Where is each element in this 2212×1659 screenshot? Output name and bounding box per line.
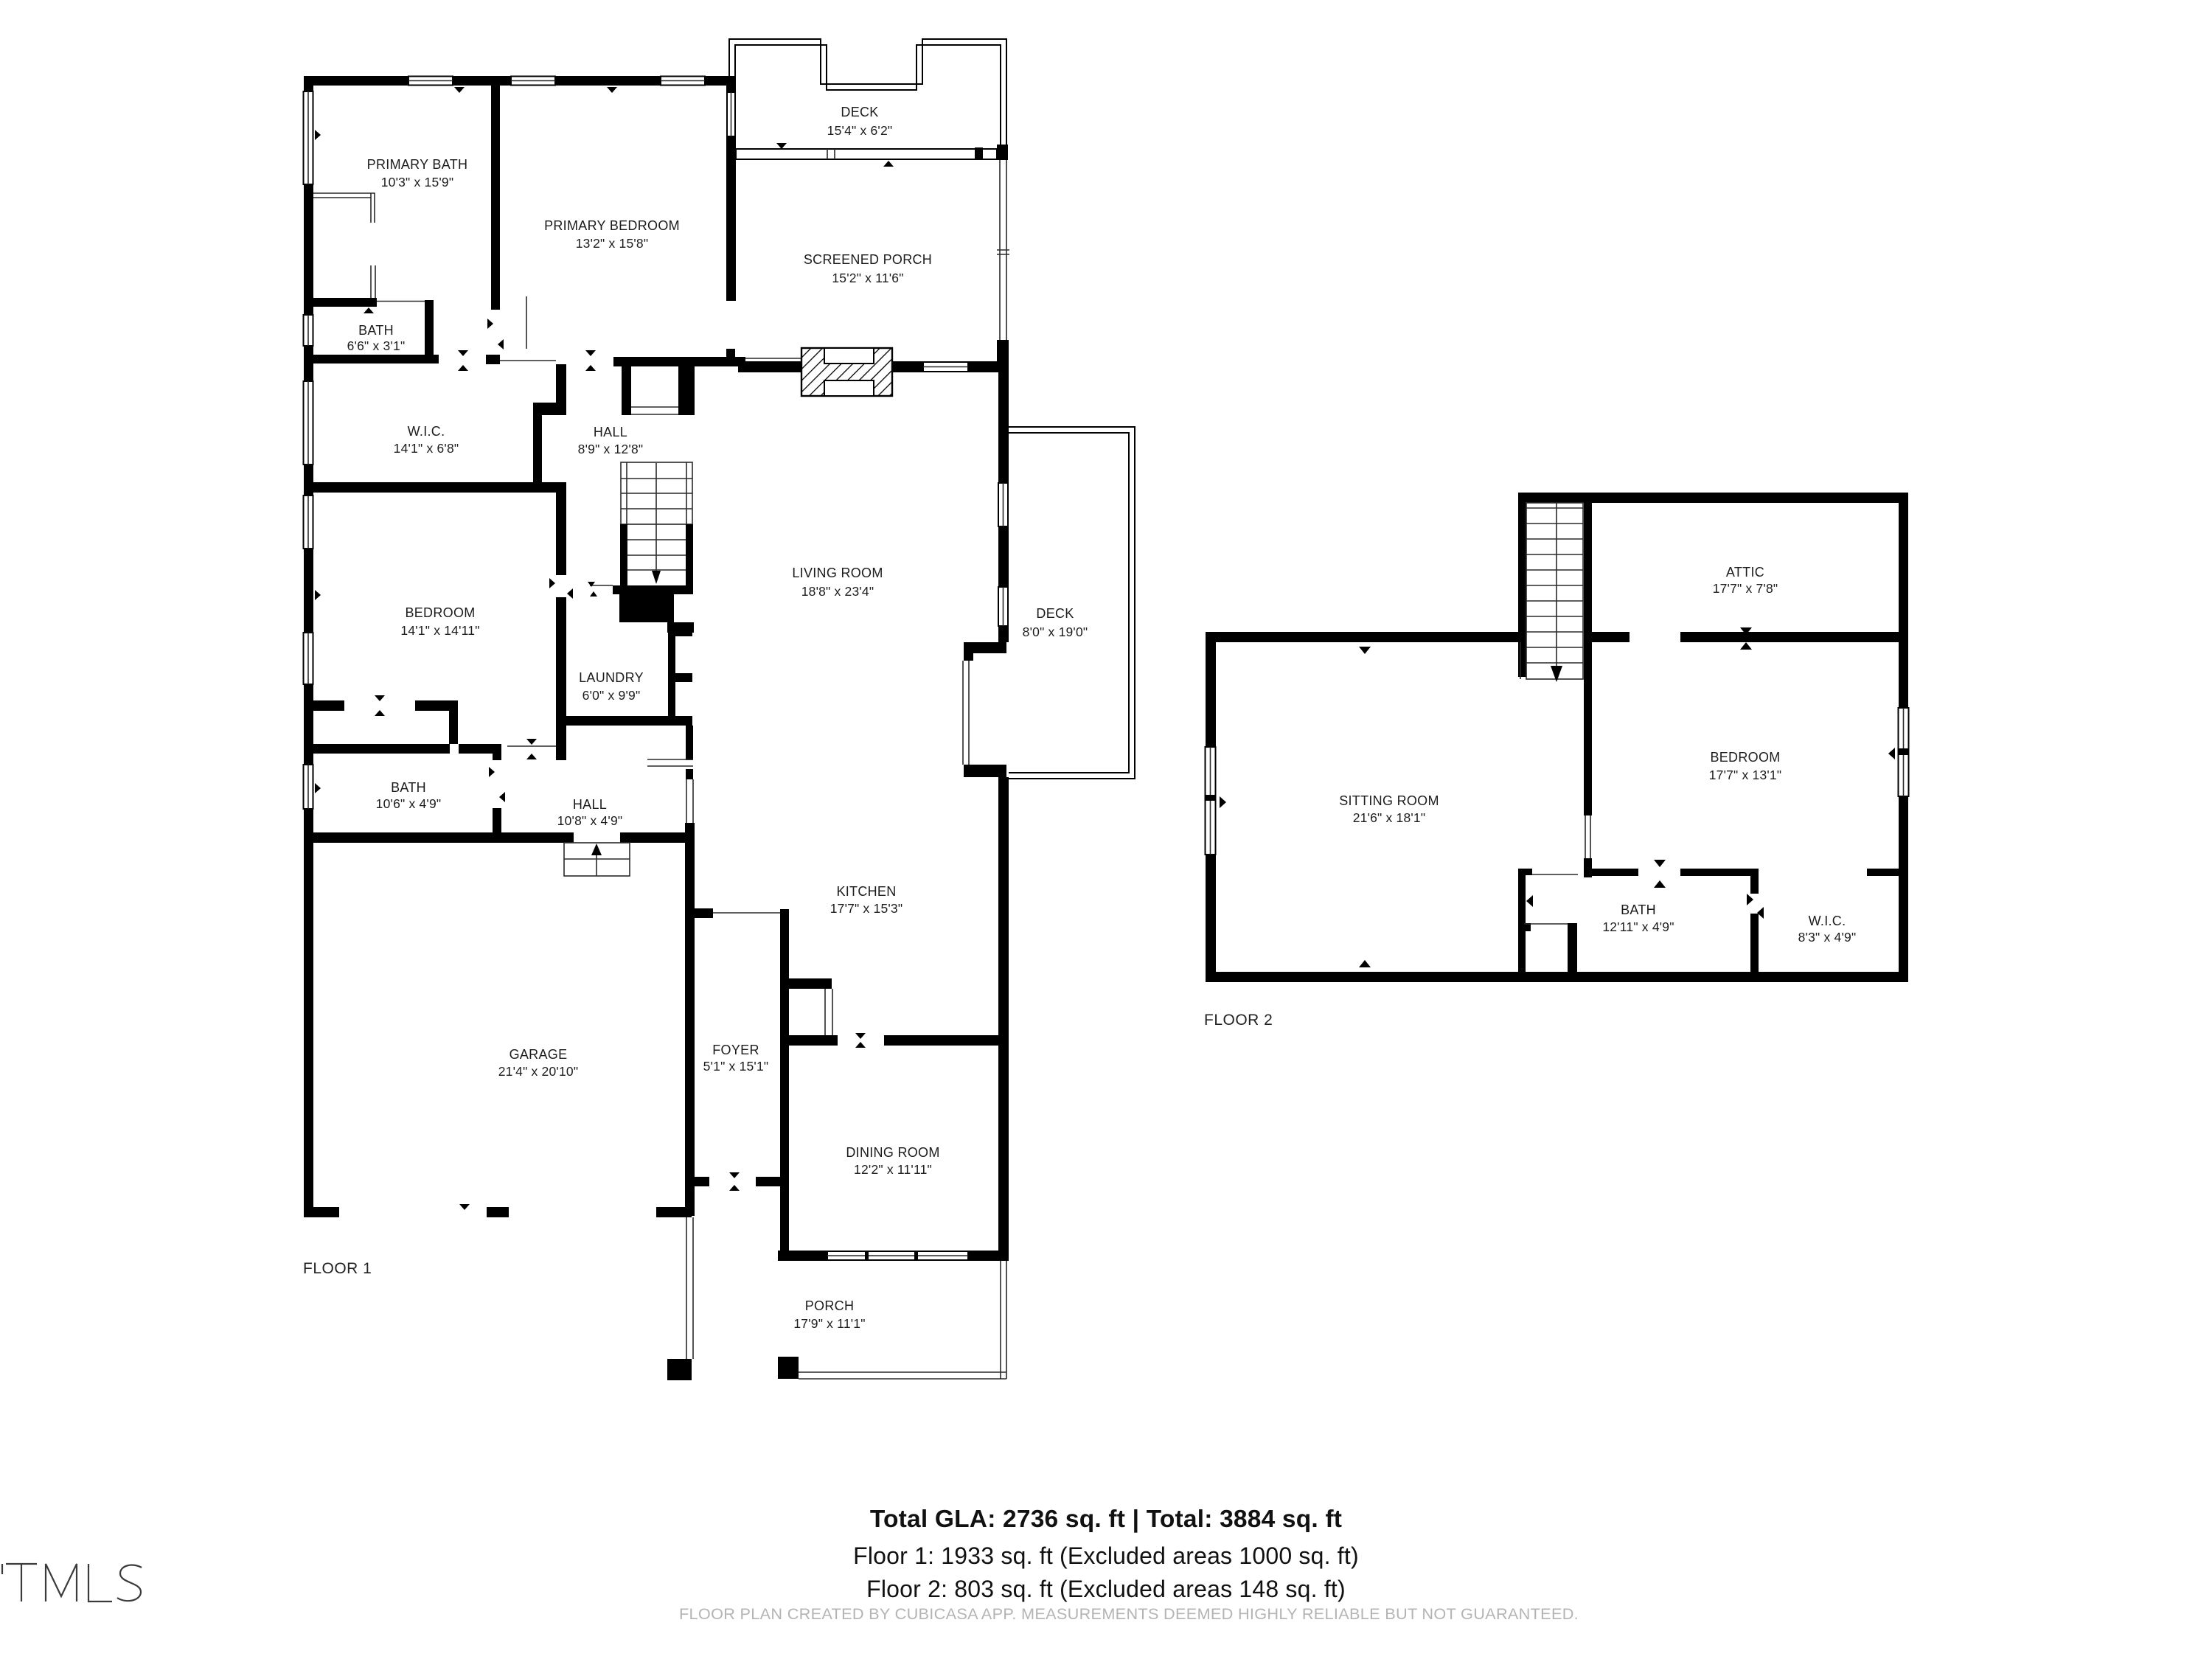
- svg-text:14'1" x 6'8": 14'1" x 6'8": [394, 441, 459, 456]
- svg-text:BATH: BATH: [358, 323, 394, 338]
- svg-text:10'3" x 15'9": 10'3" x 15'9": [381, 175, 454, 189]
- svg-text:Total GLA: 2736 sq. ft | Total: Total GLA: 2736 sq. ft | Total: 3884 sq.…: [870, 1506, 1342, 1533]
- svg-text:FLOOR 2: FLOOR 2: [1204, 1012, 1273, 1029]
- svg-text:Floor 1: 1933 sq. ft (Excluded: Floor 1: 1933 sq. ft (Excluded areas 100…: [853, 1543, 1359, 1569]
- svg-text:Floor 2: 803 sq. ft (Excluded: Floor 2: 803 sq. ft (Excluded areas 148 …: [866, 1576, 1346, 1602]
- svg-text:BEDROOM: BEDROOM: [405, 605, 475, 620]
- svg-text:12'2" x 11'11": 12'2" x 11'11": [854, 1162, 932, 1177]
- svg-text:PORCH: PORCH: [805, 1298, 855, 1313]
- svg-text:8'9" x 12'8": 8'9" x 12'8": [578, 442, 644, 456]
- svg-text:BEDROOM: BEDROOM: [1710, 750, 1780, 765]
- svg-text:FOYER: FOYER: [712, 1043, 759, 1057]
- svg-text:21'4" x 20'10": 21'4" x 20'10": [498, 1064, 579, 1079]
- svg-text:DECK: DECK: [841, 105, 878, 119]
- svg-text:12'11" x 4'9": 12'11" x 4'9": [1602, 919, 1674, 934]
- svg-text:10'6" x 4'9": 10'6" x 4'9": [376, 796, 442, 811]
- svg-text:6'0" x 9'9": 6'0" x 9'9": [582, 688, 641, 703]
- svg-text:BATH: BATH: [1621, 902, 1656, 917]
- svg-text:6'6" x 3'1": 6'6" x 3'1": [347, 338, 406, 353]
- svg-text:14'1" x 14'11": 14'1" x 14'11": [400, 623, 479, 638]
- svg-text:FLOOR 1: FLOOR 1: [303, 1260, 372, 1277]
- svg-text:DINING ROOM: DINING ROOM: [846, 1145, 939, 1160]
- svg-text:LIVING ROOM: LIVING ROOM: [792, 566, 883, 580]
- svg-text:21'6" x 18'1": 21'6" x 18'1": [1353, 810, 1426, 825]
- svg-text:8'0" x 19'0": 8'0" x 19'0": [1023, 625, 1088, 639]
- svg-text:17'7" x 7'8": 17'7" x 7'8": [1713, 581, 1778, 596]
- svg-text:5'1" x 15'1": 5'1" x 15'1": [703, 1059, 769, 1074]
- svg-text:17'7" x 13'1": 17'7" x 13'1": [1709, 768, 1782, 782]
- svg-text:17'9" x 11'1": 17'9" x 11'1": [793, 1316, 865, 1331]
- svg-text:10'8" x 4'9": 10'8" x 4'9": [557, 813, 623, 828]
- svg-text:W.I.C.: W.I.C.: [408, 424, 445, 439]
- svg-text:8'3" x 4'9": 8'3" x 4'9": [1798, 930, 1857, 945]
- svg-text:HALL: HALL: [594, 425, 627, 439]
- svg-text:15'4" x 6'2": 15'4" x 6'2": [827, 123, 893, 138]
- svg-text:PRIMARY BATH: PRIMARY BATH: [367, 157, 468, 172]
- svg-text:ATTIC: ATTIC: [1726, 565, 1764, 580]
- svg-text:BATH: BATH: [391, 780, 426, 795]
- svg-text:LAUNDRY: LAUNDRY: [579, 670, 644, 685]
- svg-text:SITTING ROOM: SITTING ROOM: [1339, 793, 1439, 808]
- svg-text:15'2" x 11'6": 15'2" x 11'6": [832, 271, 903, 285]
- svg-text:KITCHEN: KITCHEN: [836, 884, 896, 899]
- svg-text:HALL: HALL: [573, 797, 607, 812]
- svg-text:FLOOR PLAN CREATED BY CUBICASA: FLOOR PLAN CREATED BY CUBICASA APP. MEAS…: [679, 1604, 1579, 1623]
- svg-text:GARAGE: GARAGE: [509, 1047, 568, 1062]
- svg-text:SCREENED PORCH: SCREENED PORCH: [804, 252, 932, 267]
- svg-text:18'8" x 23'4": 18'8" x 23'4": [801, 584, 874, 599]
- svg-text:13'2" x 15'8": 13'2" x 15'8": [576, 236, 649, 251]
- svg-text:17'7" x 15'3": 17'7" x 15'3": [830, 901, 903, 916]
- svg-text:DECK: DECK: [1036, 606, 1074, 621]
- svg-text:PRIMARY BEDROOM: PRIMARY BEDROOM: [544, 218, 680, 233]
- svg-text:W.I.C.: W.I.C.: [1809, 914, 1846, 928]
